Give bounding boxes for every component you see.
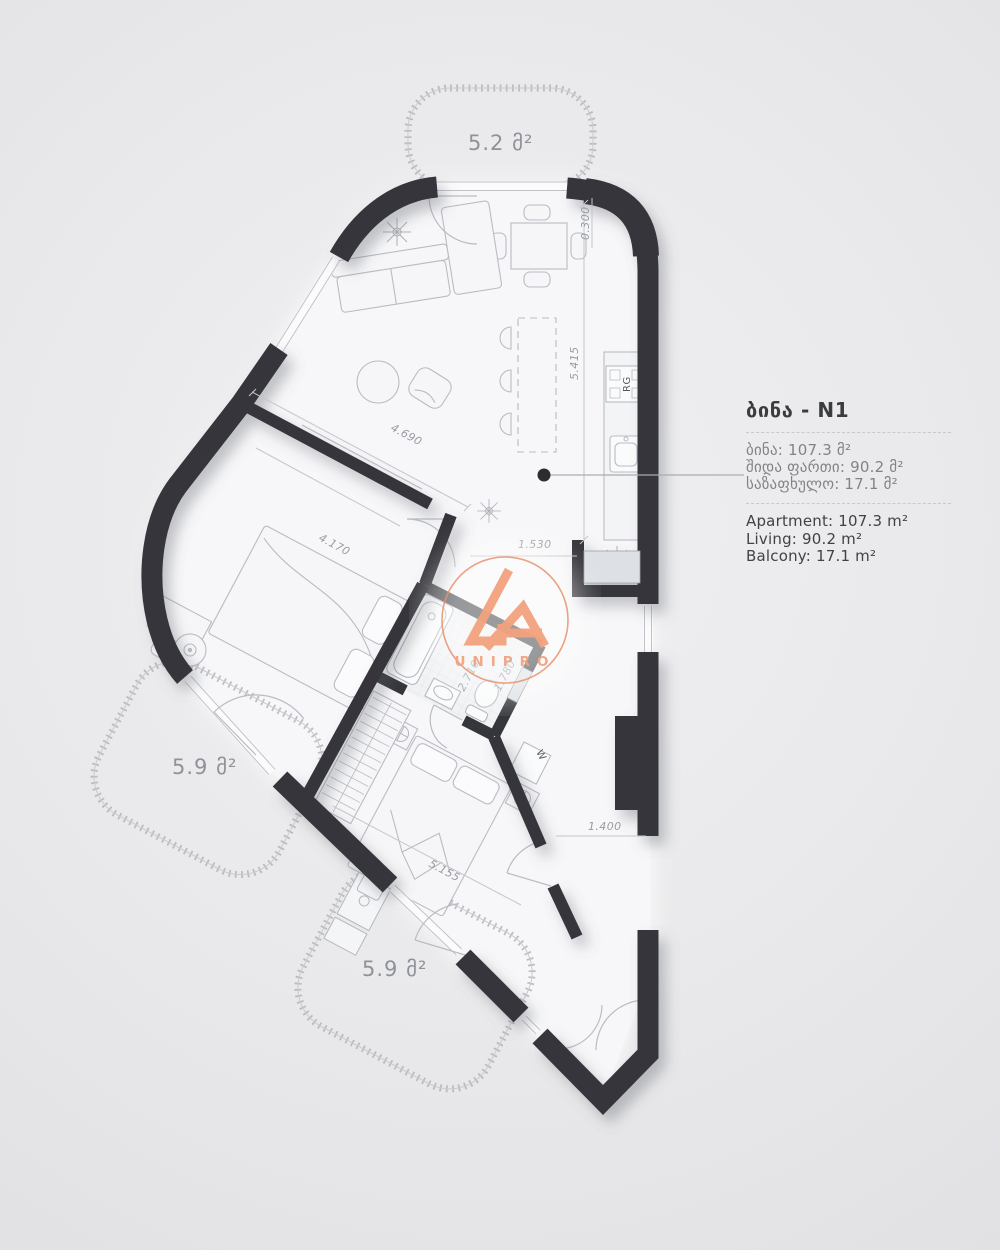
dim-1400: 1.400: [588, 820, 622, 833]
area-line-en: Apartment: 107.3 m²: [746, 513, 961, 531]
divider: [746, 432, 951, 433]
balcony-bottom-label: 5.9 მ²: [362, 957, 427, 981]
logo-wordmark: UNIPRO: [454, 654, 555, 670]
floor-plan-page: 4.690 4.170 5.415 0.300 1.530 2.710 1.78…: [0, 0, 1000, 1250]
floor-plan-drawing: 4.690 4.170 5.415 0.300 1.530 2.710 1.78…: [0, 0, 1000, 1250]
unipro-logo: UNIPRO: [425, 540, 585, 700]
coffee-table: [357, 361, 399, 403]
english-areas: Apartment: 107.3 m² Living: 90.2 m² Balc…: [746, 513, 961, 566]
area-line-en: Living: 90.2 m²: [746, 531, 961, 549]
divider: [746, 503, 951, 504]
area-line-ka: ბინა: 107.3 მ²: [746, 442, 961, 459]
georgian-areas: ბინა: 107.3 მ² შიდა ფართი: 90.2 მ² საზაფ…: [746, 442, 961, 493]
range-label: RG: [622, 376, 633, 392]
leader-dot: [538, 469, 551, 482]
dim-5415: 5.415: [568, 347, 581, 381]
apartment-title: ბინა - N1: [746, 398, 961, 422]
dim-0300: 0.300: [579, 207, 592, 241]
info-panel: ბინა - N1 ბინა: 107.3 მ² შიდა ფართი: 90.…: [746, 398, 961, 566]
balcony-top-label: 5.2 მ²: [468, 131, 533, 155]
area-line-en: Balcony: 17.1 m²: [746, 548, 961, 566]
plant-icon: [477, 499, 501, 523]
area-line-ka: საზაფხულო: 17.1 მ²: [746, 476, 961, 493]
plant-icon: [383, 218, 411, 246]
balcony-left-label: 5.9 მ²: [172, 755, 237, 779]
area-line-ka: შიდა ფართი: 90.2 მ²: [746, 459, 961, 476]
